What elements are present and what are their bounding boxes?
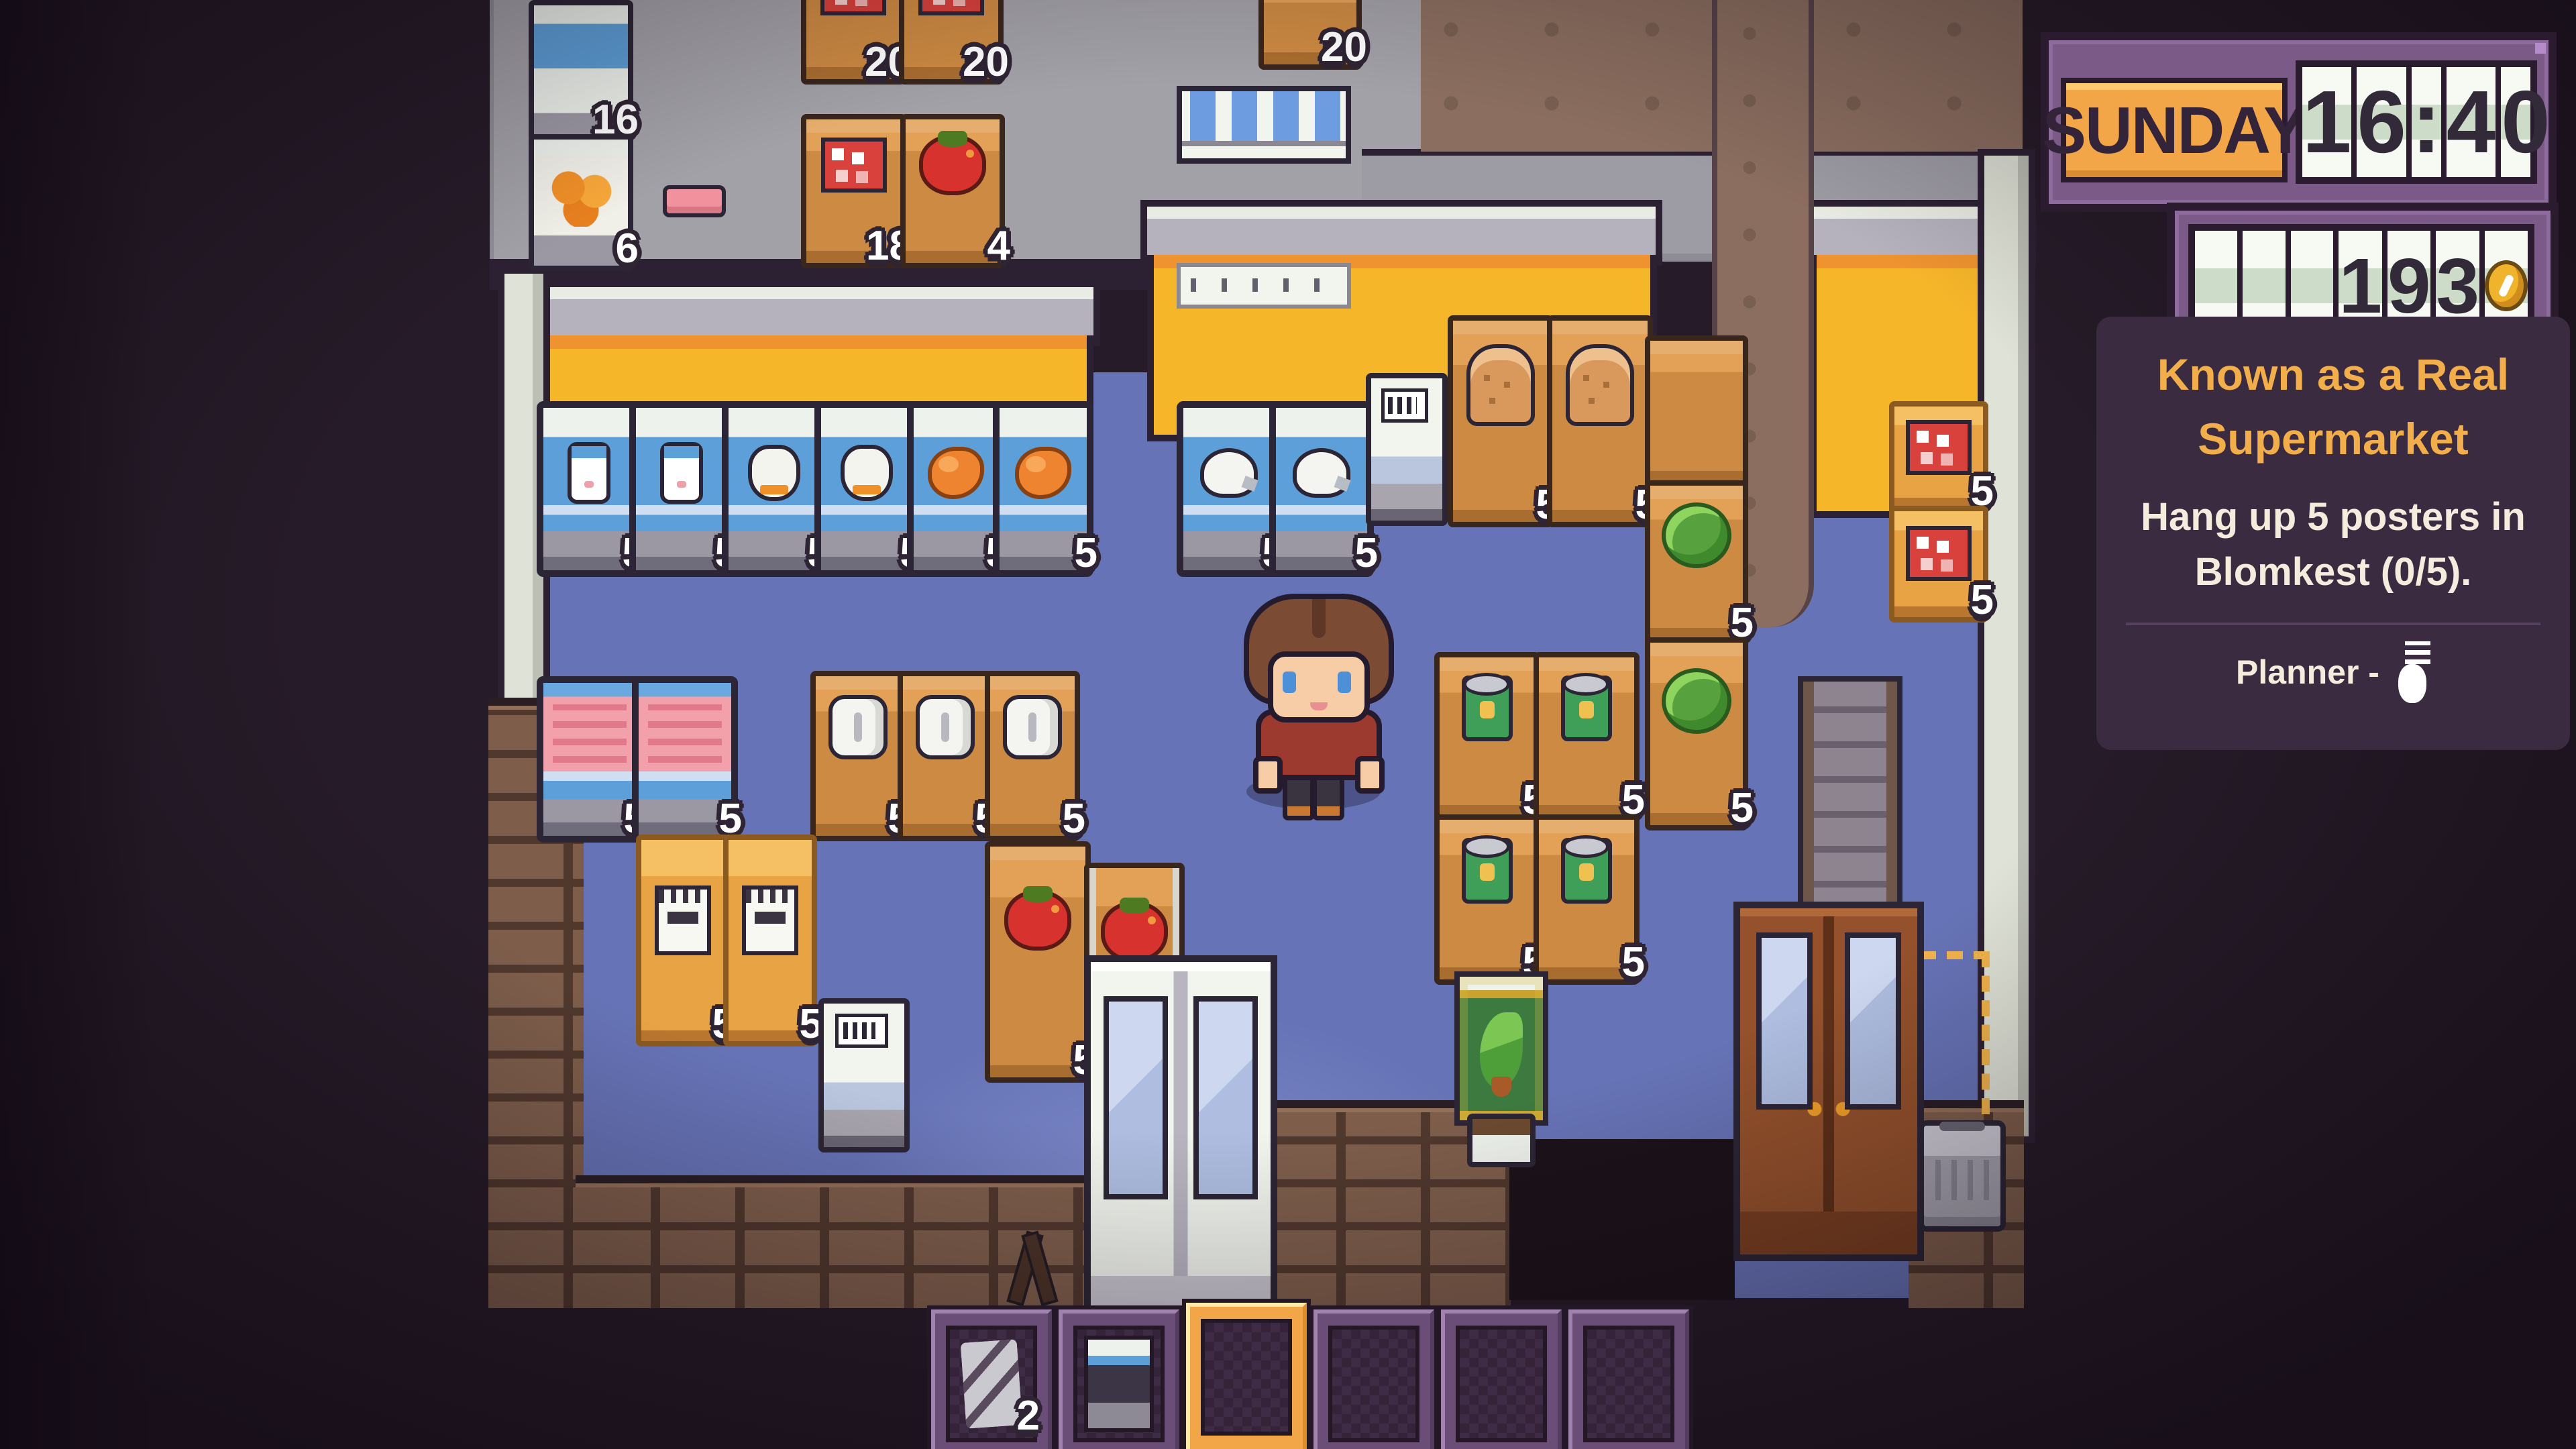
stock-count: 5: [1622, 942, 1645, 983]
quest-description: Hang up 5 posters in Blomkest (0/5).: [2123, 490, 2543, 600]
toilet-paper-crate[interactable]: 5: [898, 671, 993, 841]
quest-divider: [2126, 623, 2540, 625]
redbox-icon: [820, 0, 886, 15]
window-row: [1177, 86, 1351, 164]
empty-crate[interactable]: [1645, 335, 1748, 488]
posters-icon: [961, 1339, 1023, 1429]
hotbar-well: [1328, 1326, 1419, 1442]
freezer-milk[interactable]: 5: [629, 401, 734, 577]
fishwhite-icon: [1200, 448, 1258, 498]
tp-icon: [916, 695, 975, 759]
stock-count: 5: [1075, 533, 1097, 574]
oat-icon: [655, 885, 711, 955]
cabbage-crate[interactable]: 5: [1645, 637, 1748, 830]
bread-crate[interactable]: 5: [1547, 315, 1653, 527]
storage-crate[interactable]: 20: [1258, 0, 1362, 70]
stock-count: 5: [719, 798, 742, 840]
door-sliding-white[interactable]: [1084, 955, 1277, 1312]
hotbar-slot-6[interactable]: [1568, 1309, 1689, 1449]
tp-icon: [1003, 695, 1062, 759]
hotbar-well: [1583, 1326, 1674, 1442]
redbox-icon: [821, 138, 887, 193]
game-screen: 1620201846205555555555555555555555105555…: [0, 0, 2576, 1449]
time-digit: 6: [2357, 67, 2411, 177]
freezer-poultry[interactable]: 5: [814, 401, 919, 577]
snack-shelf[interactable]: 5: [1889, 401, 1988, 514]
hotbar-slot-1[interactable]: 2: [931, 1309, 1052, 1449]
stock-count: 5: [1355, 533, 1378, 574]
redbox-icon: [1906, 420, 1972, 475]
hotbar-well: [1201, 1319, 1292, 1436]
hotbar: 2: [931, 1309, 1689, 1449]
jug-icon: [841, 445, 893, 501]
freezer-fish[interactable]: 5: [1269, 401, 1374, 577]
cans-crate[interactable]: 5: [1434, 814, 1540, 985]
freezer-meat[interactable]: 5: [537, 676, 643, 843]
storage-fridge[interactable]: 6: [529, 134, 633, 271]
planner-icon: [2397, 641, 2430, 703]
freezer-poultry[interactable]: 5: [722, 401, 826, 577]
checkout-register[interactable]: [818, 998, 910, 1152]
fishwhite-icon: [1293, 448, 1350, 498]
freezer-seafood[interactable]: 5: [993, 401, 1093, 577]
redbox-icon: [918, 0, 984, 15]
day-label: SUNDAY: [2061, 78, 2288, 182]
shopping-cart[interactable]: [1919, 1120, 2006, 1232]
stock-count: 20: [963, 42, 1009, 83]
poster-banner[interactable]: [1454, 971, 1548, 1167]
storage-crate[interactable]: 18: [801, 114, 907, 268]
stock-count: 5: [1971, 580, 1994, 621]
hotbar-slot-5[interactable]: [1441, 1309, 1562, 1449]
hotbar-well: [1456, 1326, 1547, 1442]
hotbar-well: [1073, 1326, 1165, 1442]
snack-shelf[interactable]: 5: [1889, 506, 1988, 623]
hotbar-slot-2[interactable]: [1059, 1309, 1179, 1449]
meat-scrap: [663, 185, 726, 217]
freezer-milk[interactable]: 5: [537, 401, 641, 577]
shrimp-icon: [1015, 447, 1071, 499]
tomato-icon: [1004, 890, 1071, 951]
cans-crate[interactable]: 5: [1534, 814, 1640, 985]
quest-reward-row: Planner -: [2123, 641, 2543, 703]
cans-crate[interactable]: 5: [1434, 652, 1540, 822]
can-icon: [1462, 838, 1513, 904]
freezer-meat[interactable]: 5: [632, 676, 738, 843]
time-display: 1 6 : 4 0: [2296, 60, 2537, 184]
quest-title: Known as a Real Supermarket: [2123, 342, 2543, 471]
oranges-icon: [549, 168, 612, 227]
hotbar-slot-4[interactable]: [1313, 1309, 1434, 1449]
cabbage-crate[interactable]: 5: [1645, 480, 1748, 645]
bread-icon: [1466, 344, 1535, 426]
tp-icon: [828, 695, 888, 759]
item-count: 2: [1017, 1395, 1040, 1437]
toilet-paper-crate[interactable]: 5: [985, 671, 1080, 841]
quest-reward-label: Planner -: [2236, 655, 2379, 689]
stock-count: 4: [987, 225, 1010, 267]
window-sill: [1177, 263, 1351, 309]
player-character: [1241, 594, 1386, 814]
stock-count: 5: [1063, 798, 1085, 840]
oat-shelf[interactable]: 5: [636, 835, 730, 1046]
stock-count: 20: [1321, 27, 1367, 68]
oat-icon: [742, 885, 798, 955]
toilet-paper-crate[interactable]: 5: [810, 671, 906, 841]
time-digit: 0: [2501, 67, 2550, 177]
freezer-seafood[interactable]: 5: [907, 401, 1005, 577]
time-digit: 1: [2302, 67, 2357, 177]
clock-panel: SUNDAY 1 6 : 4 0: [2041, 32, 2557, 212]
bread-icon: [1566, 344, 1634, 426]
jug-icon: [748, 445, 800, 501]
milk-icon: [568, 442, 610, 504]
can-icon: [1561, 676, 1612, 741]
ladder-stand: [1000, 1232, 1065, 1300]
time-colon: :: [2412, 67, 2447, 177]
cans-crate[interactable]: 5: [1534, 652, 1640, 822]
storage-crate[interactable]: 4: [900, 114, 1005, 268]
stock-count: 6: [616, 228, 639, 270]
cabbage-icon: [1662, 668, 1731, 734]
quest-panel: Known as a Real Supermarket Hang up 5 po…: [2096, 317, 2570, 750]
plant-icon: [1480, 1012, 1523, 1087]
checkout-register[interactable]: [1366, 373, 1448, 526]
can-icon: [1462, 676, 1513, 741]
redbox-icon: [1906, 526, 1972, 581]
door-double-brown[interactable]: [1733, 902, 1924, 1261]
tomato-crate[interactable]: 5: [985, 841, 1091, 1083]
player-face: [1268, 651, 1370, 722]
storage-crate[interactable]: 20: [801, 0, 906, 85]
storage-crate[interactable]: 20: [899, 0, 1004, 85]
tomato-icon: [1101, 902, 1168, 962]
can-icon: [1561, 838, 1612, 904]
tomato-icon: [919, 135, 986, 195]
hotbar-well: 2: [946, 1326, 1037, 1442]
time-digit: 4: [2447, 67, 2501, 177]
storage-fridge[interactable]: 16: [529, 0, 633, 142]
coin-icon: [2485, 260, 2528, 311]
freezer-fish[interactable]: 5: [1177, 401, 1281, 577]
shrimp-icon: [928, 447, 984, 499]
hotbar-slot-3-selected[interactable]: [1186, 1303, 1307, 1449]
freezer-item-icon: [1084, 1336, 1154, 1432]
oat-shelf[interactable]: 5: [723, 835, 817, 1046]
cabbage-icon: [1662, 502, 1731, 568]
milk-icon: [660, 442, 703, 504]
stock-count: 5: [1731, 788, 1754, 829]
bread-crate[interactable]: 5: [1448, 315, 1554, 527]
